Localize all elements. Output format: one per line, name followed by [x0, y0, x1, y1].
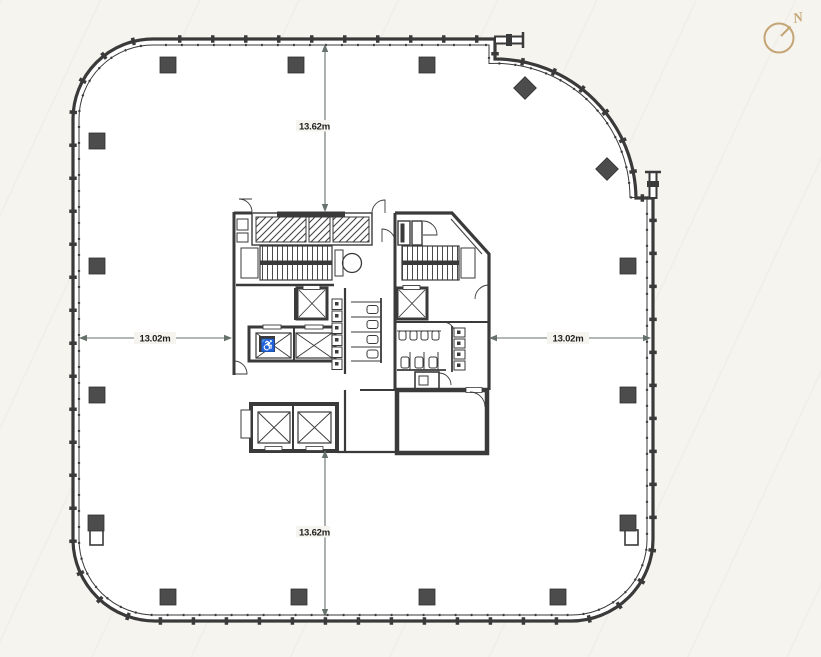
shaft-box	[335, 250, 343, 276]
column	[288, 57, 304, 73]
shaft-box-right	[398, 221, 422, 245]
dimension-label-top: 13.62m	[299, 122, 330, 133]
dimension-label-bottom: 13.62m	[299, 528, 330, 539]
column	[620, 258, 636, 274]
stair-right	[402, 246, 475, 280]
elevator	[297, 286, 327, 320]
service-room-bottom-right	[397, 388, 487, 454]
column	[89, 258, 105, 274]
column	[419, 57, 435, 73]
column	[291, 589, 307, 605]
elevator	[397, 286, 427, 320]
column	[89, 133, 105, 149]
column	[419, 589, 435, 605]
dimension-label-right: 13.02m	[552, 334, 583, 345]
column	[620, 387, 636, 403]
column	[550, 589, 566, 605]
top-wall-stub	[495, 32, 523, 48]
compass-needle	[781, 27, 791, 37]
floor-plan-page: ♿	[0, 0, 821, 657]
north-label: N	[791, 10, 806, 27]
shaft-box	[237, 219, 248, 230]
hatched-shaft-block	[252, 212, 372, 246]
column	[160, 589, 176, 605]
right-wall-stub	[645, 172, 661, 198]
floor-plan-canvas: ♿	[0, 0, 821, 657]
column-with-tab	[88, 515, 104, 545]
column	[160, 57, 176, 73]
column	[89, 387, 105, 403]
north-compass: N	[765, 10, 806, 53]
stair-left	[241, 246, 332, 280]
shaft-box	[237, 233, 248, 242]
dimension-label-left: 13.02m	[139, 334, 170, 345]
wheelchair-icon: ♿	[261, 339, 276, 353]
elevator-bank-mid: ♿	[249, 325, 335, 361]
elevator-bank-bottom	[241, 404, 337, 451]
